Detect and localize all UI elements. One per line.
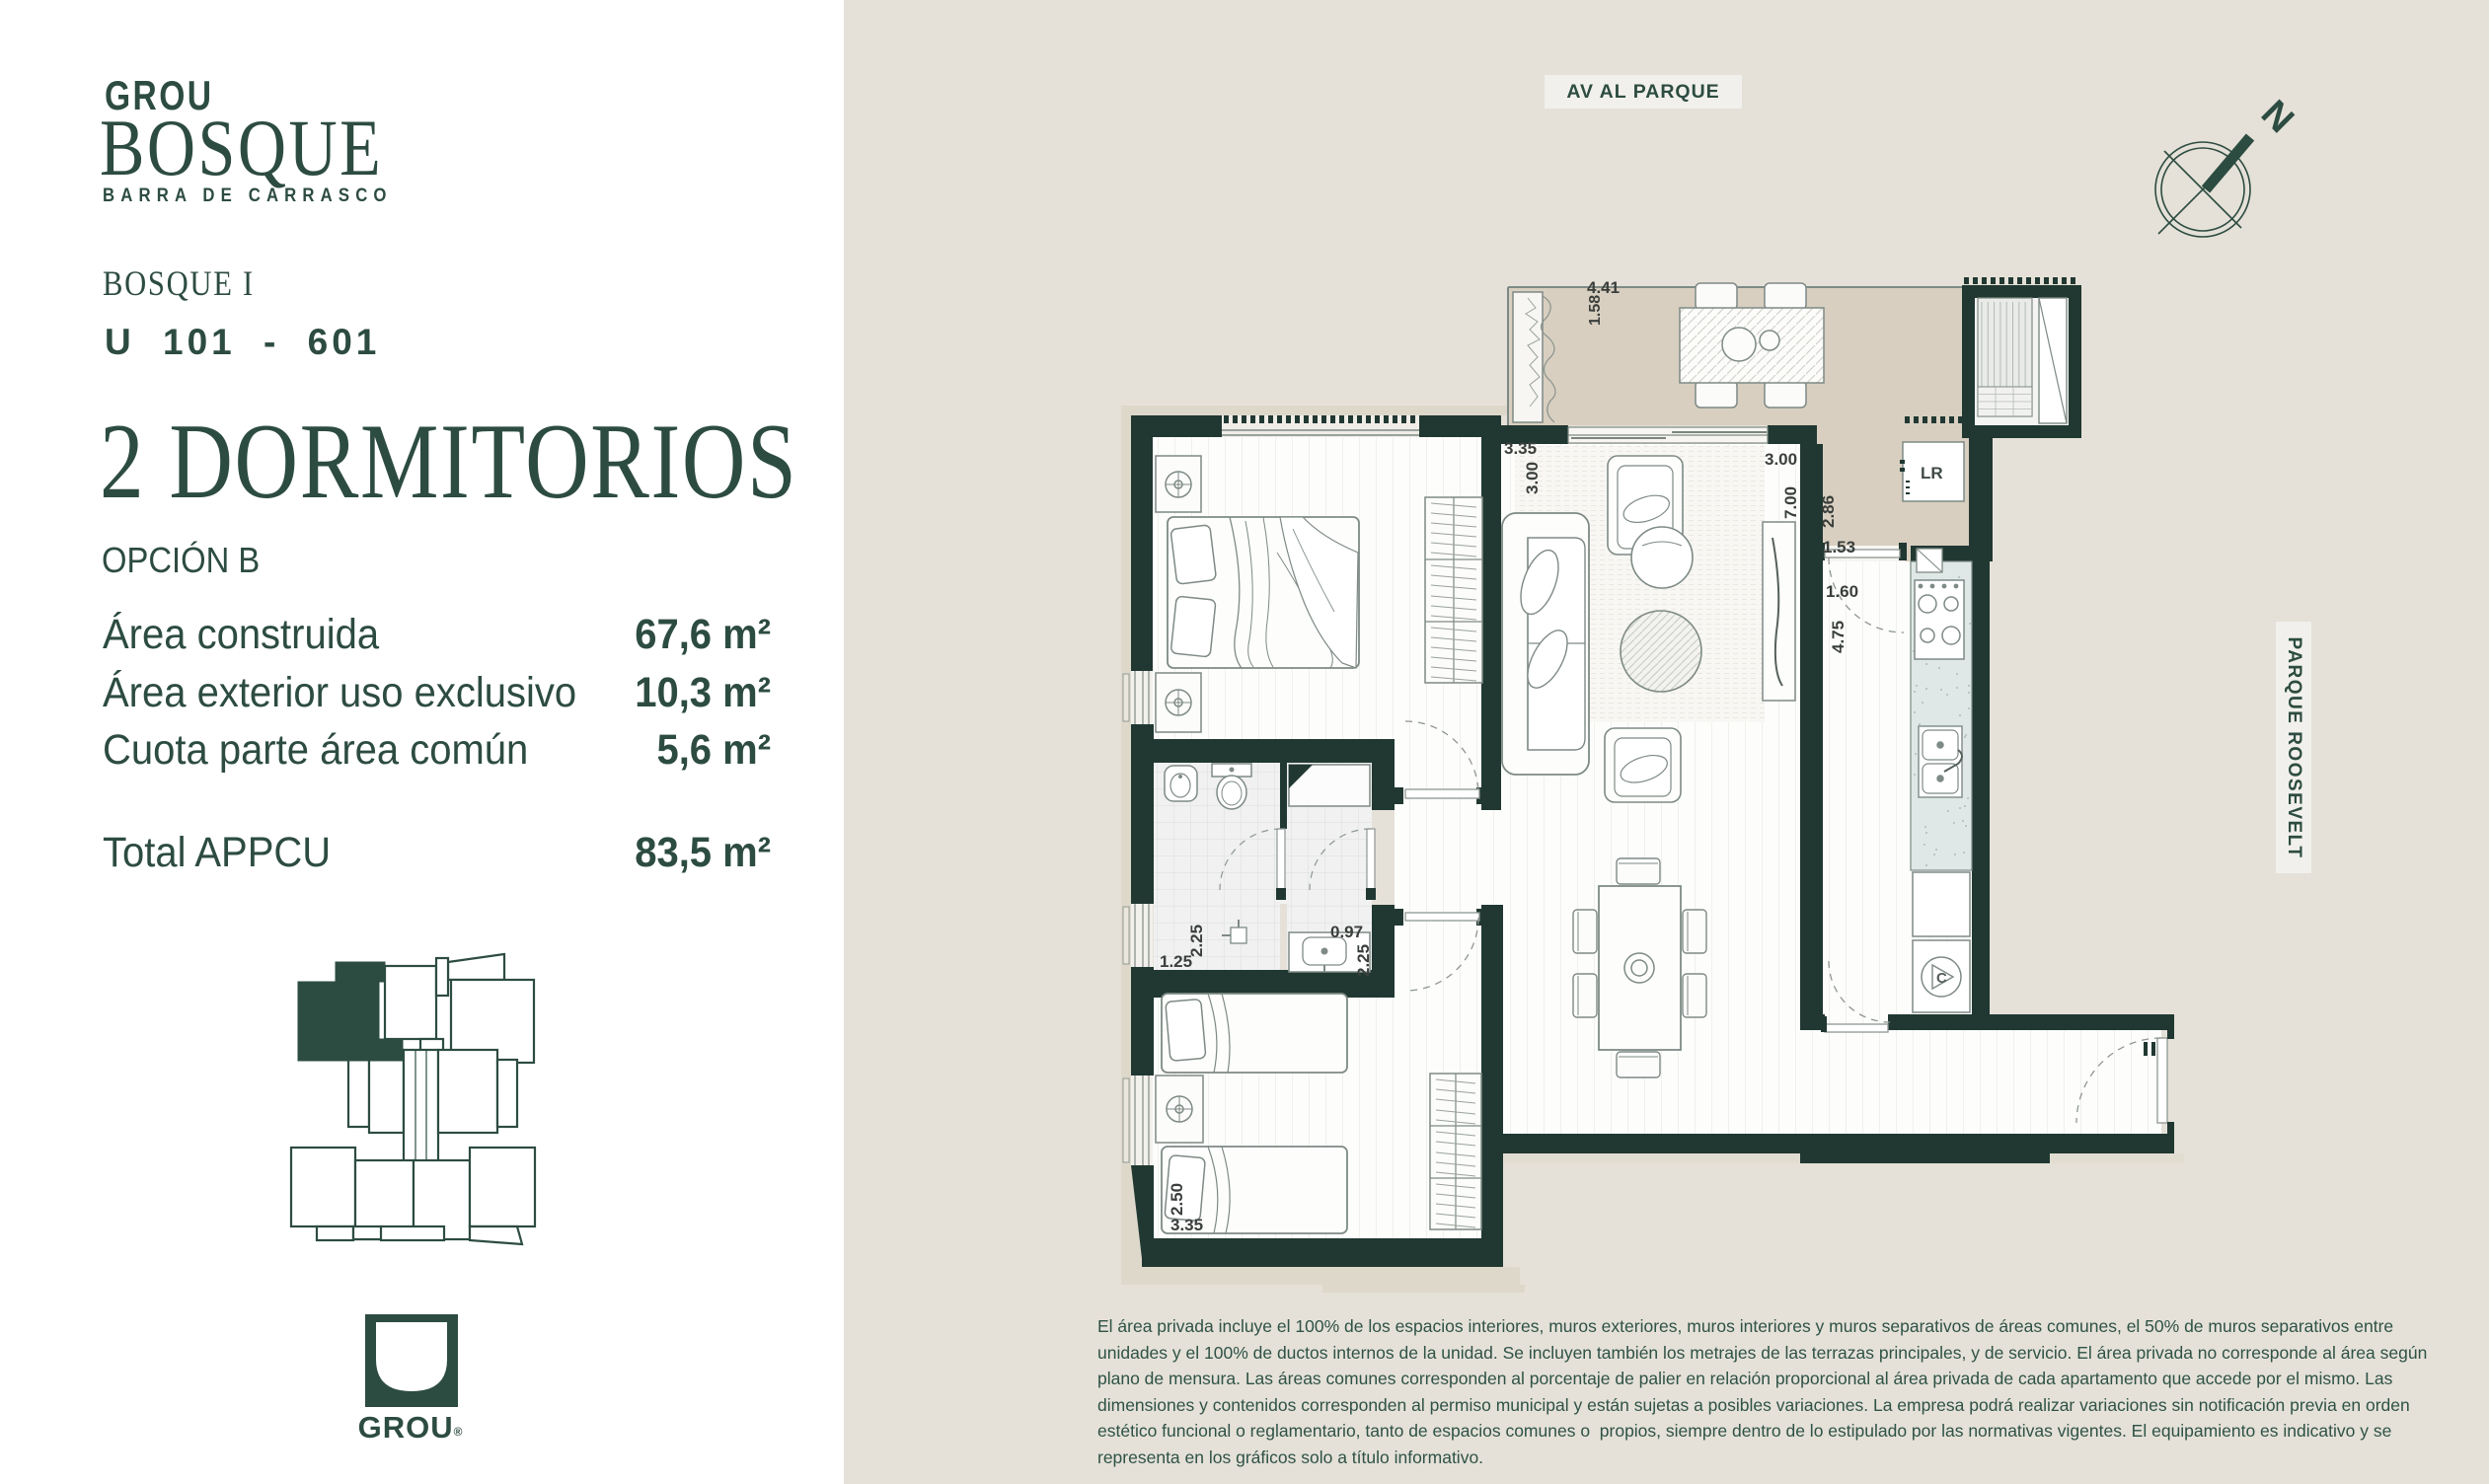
svg-text:1.60: 1.60 [1826, 582, 1858, 601]
svg-text:1.25: 1.25 [1160, 952, 1192, 971]
svg-text:LR: LR [1921, 464, 1943, 482]
svg-text:0.97: 0.97 [1330, 923, 1363, 941]
svg-text:2.86: 2.86 [1819, 495, 1838, 528]
svg-text:2.50: 2.50 [1168, 1183, 1186, 1216]
svg-text:2.25: 2.25 [1354, 944, 1373, 977]
svg-text:N: N [2253, 93, 2301, 141]
svg-text:3.35: 3.35 [1170, 1216, 1203, 1234]
svg-text:3.00: 3.00 [1765, 450, 1797, 469]
svg-text:4.75: 4.75 [1829, 621, 1848, 653]
svg-text:4.41: 4.41 [1587, 278, 1620, 297]
svg-text:1.53: 1.53 [1823, 538, 1855, 556]
svg-text:1.58: 1.58 [1587, 295, 1604, 326]
svg-text:3.35: 3.35 [1504, 439, 1537, 458]
svg-text:3.00: 3.00 [1523, 462, 1542, 494]
svg-text:7.00: 7.00 [1781, 486, 1800, 519]
svg-text:C: C [1936, 970, 1947, 987]
